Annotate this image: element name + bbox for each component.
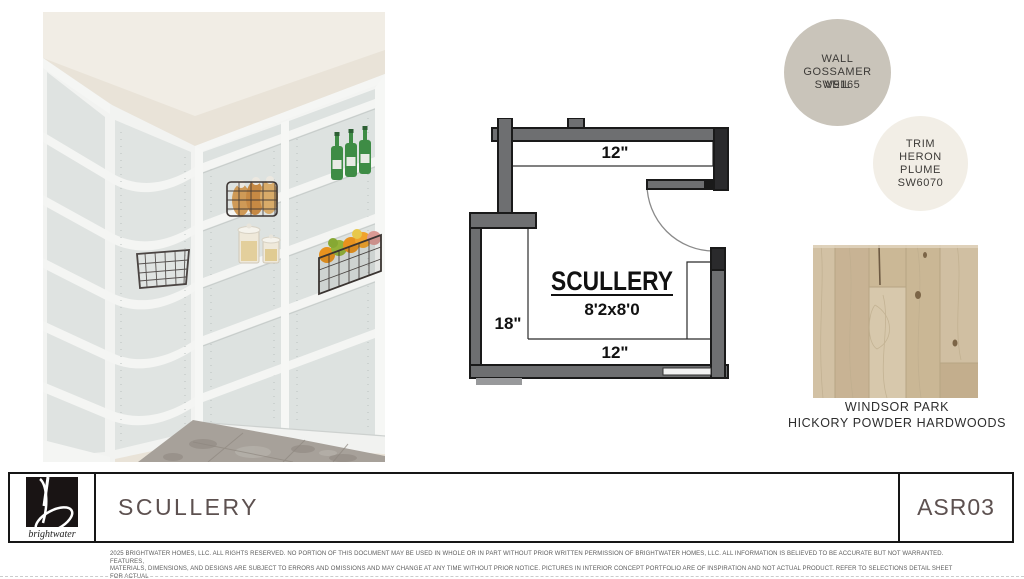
trim-swatch-line1: TRIM — [906, 138, 935, 151]
sheet-code: ASR03 — [917, 494, 995, 521]
brand-logo-cell: brightwater — [10, 474, 96, 541]
hardwood-sample — [813, 245, 978, 398]
wall-swatch-code-line: VEIL SW9165 — [784, 79, 891, 92]
page-bottom-edge — [0, 576, 1024, 577]
paint-swatch-trim: TRIM HERON PLUME SW6070 — [873, 116, 968, 211]
wall-swatch-line1: WALL — [822, 53, 854, 66]
legal-line-1: 2025 BRIGHTWATER HOMES, LLC. ALL RIGHTS … — [110, 551, 955, 566]
plan-room-size: 8'2x8'0 — [584, 300, 639, 319]
flooring-label: WINDSOR PARK HICKORY POWDER HARDWOODS — [772, 399, 1022, 431]
brightwater-logo-icon: brightwater — [15, 476, 89, 540]
plan-dim-top: 12" — [602, 143, 629, 162]
brightwater-logo-text: brightwater — [28, 529, 75, 540]
flooring-type: HICKORY POWDER HARDWOODS — [772, 415, 1022, 431]
plan-dim-left: 18" — [495, 314, 522, 333]
sheet-title: SCULLERY — [96, 494, 259, 521]
sheet-title-cell: SCULLERY — [96, 474, 898, 541]
title-block: brightwater SCULLERY ASR03 — [8, 472, 1014, 543]
floorplan: 12" 18" 12" SCULLERY 8'2x8'0 — [468, 118, 730, 392]
trim-swatch-code: SW6070 — [898, 177, 944, 190]
trim-swatch-line2: HERON — [899, 151, 942, 164]
legal-disclaimer: 2025 BRIGHTWATER HOMES, LLC. ALL RIGHTS … — [110, 551, 955, 579]
concept-sheet-page: 12" 18" 12" SCULLERY 8'2x8'0 WALL GOSSAM… — [0, 0, 1024, 579]
sheet-code-cell: ASR03 — [898, 474, 1012, 541]
bread-basket-photo-item — [227, 176, 278, 216]
plan-room-label: SCULLERY — [551, 266, 673, 296]
flooring-name: WINDSOR PARK — [772, 399, 1022, 415]
trim-swatch-line3: PLUME — [900, 164, 941, 177]
green-bottles-photo-item — [331, 126, 371, 180]
legal-line-2: MATERIALS, DIMENSIONS, AND DESIGNS ARE S… — [110, 566, 955, 579]
wall-swatch-code: SW9165 — [784, 79, 891, 92]
paint-swatch-wall: WALL GOSSAMER VEIL SW9165 — [784, 19, 891, 126]
wall-swatch-line2: GOSSAMER — [803, 66, 871, 79]
pantry-photo — [43, 12, 385, 462]
plan-dim-bottom: 12" — [602, 343, 629, 362]
